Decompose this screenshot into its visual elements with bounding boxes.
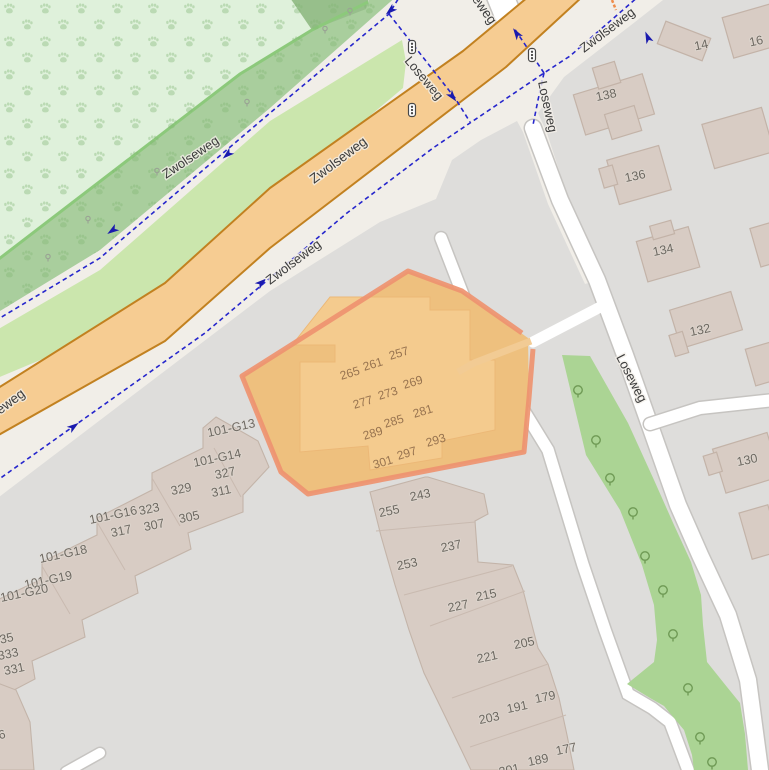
svg-text:14: 14 <box>693 37 710 54</box>
svg-text:16: 16 <box>748 33 765 50</box>
